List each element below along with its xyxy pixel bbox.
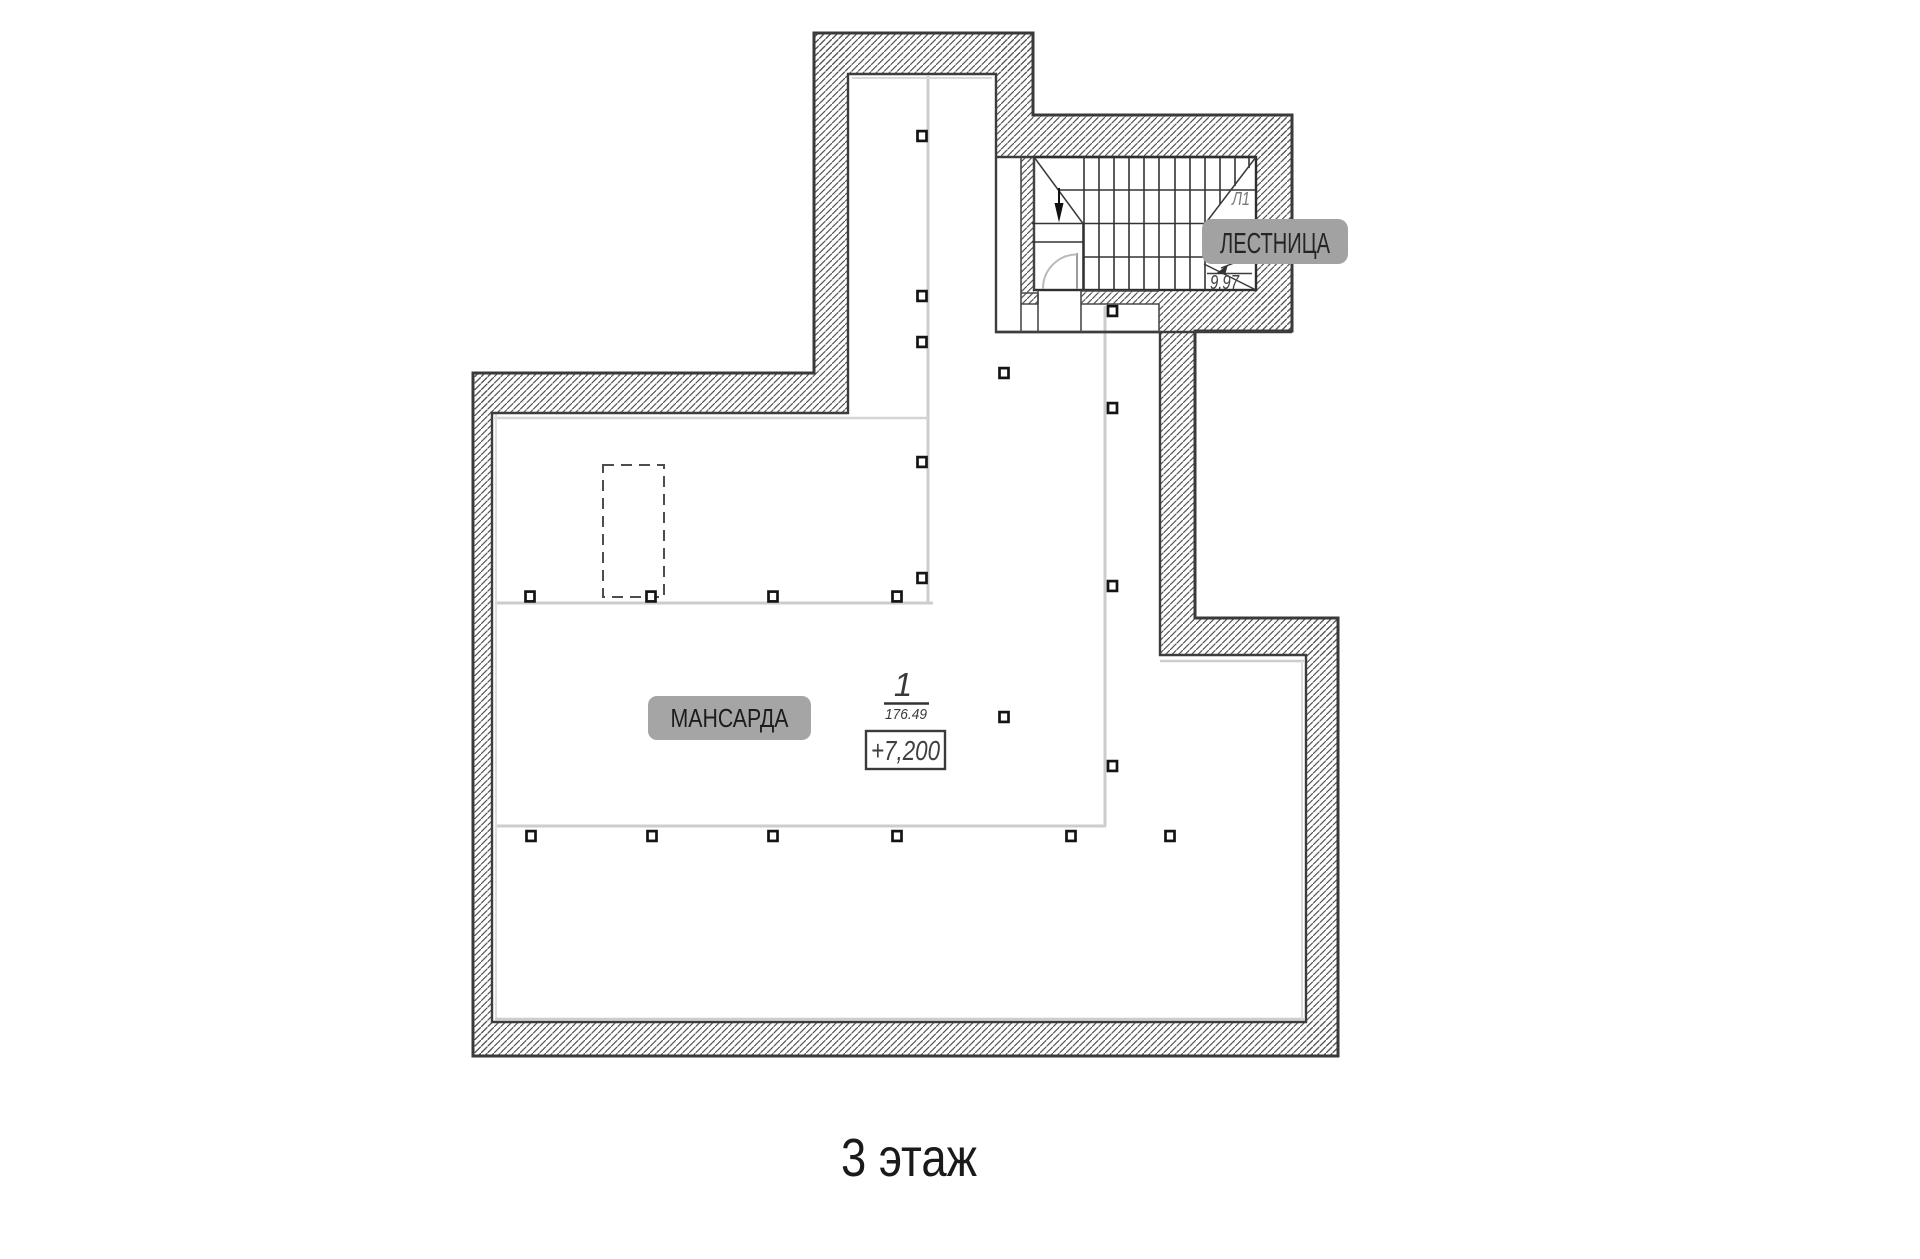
- svg-text:176.49: 176.49: [885, 706, 928, 723]
- svg-text:МАНСАРДА: МАНСАРДА: [671, 703, 790, 733]
- svg-text:+7,200: +7,200: [871, 735, 940, 766]
- svg-text:Л1: Л1: [1231, 189, 1250, 209]
- svg-text:3 этаж: 3 этаж: [841, 1128, 977, 1188]
- svg-text:9.97: 9.97: [1210, 272, 1240, 294]
- svg-text:ЛЕСТНИЦА: ЛЕСТНИЦА: [1220, 228, 1330, 260]
- svg-text:1: 1: [894, 666, 912, 703]
